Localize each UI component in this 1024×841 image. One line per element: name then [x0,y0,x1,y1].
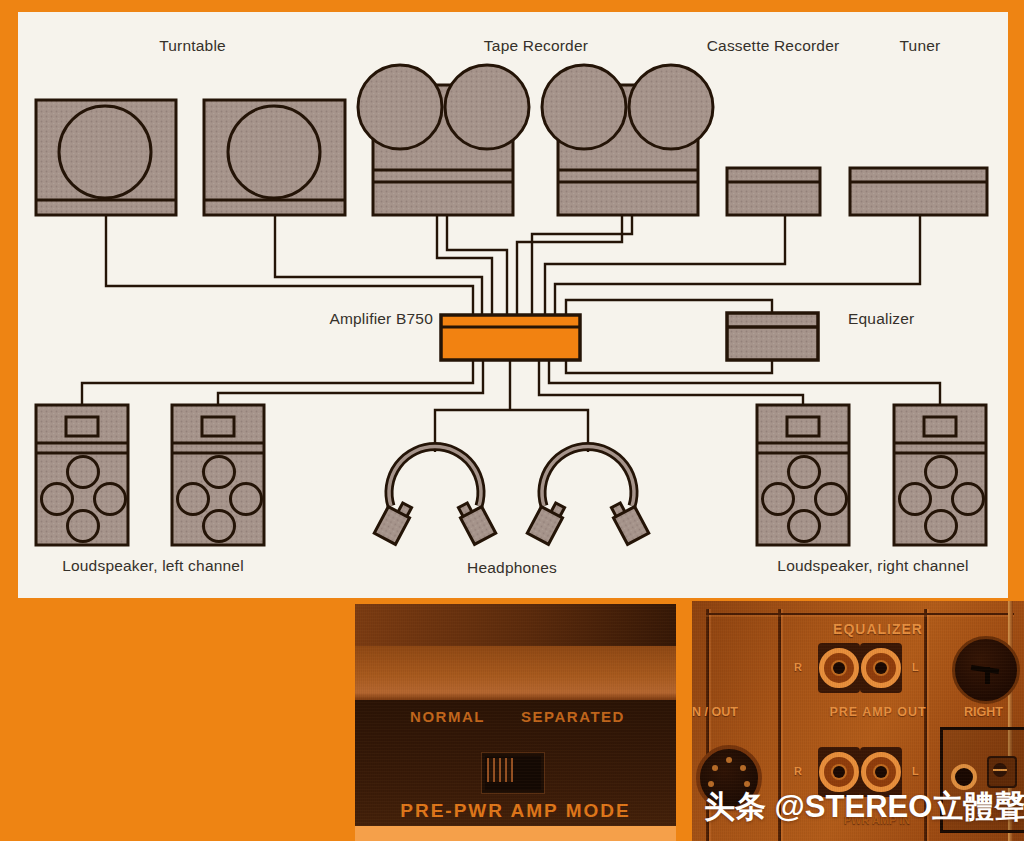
rear-label-in-out: N / OUT [692,705,738,719]
label-loudspeaker-left: Loudspeaker, left channel [53,557,253,575]
cassette-recorder-icon [727,168,820,215]
wire-turntable-2 [275,215,482,315]
switch-label-normal: NORMAL [400,708,495,725]
switch-photo: NORMAL SEPARATED PRE-PWR AMP MODE [355,604,676,826]
photo-bottom-strip [355,826,676,841]
label-turntable: Turntable [115,37,270,55]
rear-label-right: RIGHT [964,705,1003,719]
label-headphones: Headphones [412,559,612,577]
wire-turntable-1 [106,215,473,315]
label-amplifier: Amplifier B750 [280,310,433,328]
turntable-icon-2 [204,100,345,215]
tape-recorder-icon-1 [358,65,529,215]
turntable-icon-1 [36,100,176,215]
equalizer-box [727,313,818,360]
wire-headphones-split [435,410,588,452]
headphones-icon-2 [527,447,648,545]
label-cassette-recorder: Cassette Recorder [693,37,853,55]
panel-groove-top [706,613,1014,615]
switch-label-separated: SEPARATED [517,708,629,725]
label-tuner: Tuner [860,37,980,55]
jack-label-r: R [794,661,802,673]
tape-recorder-icon-2 [542,65,713,215]
loudspeaker-icon-right-1 [757,405,849,545]
watermark-text: 头条 @STEREO立體聲 [704,786,1024,828]
amplifier-box [441,315,580,360]
rear-label-pre-amp-out: PRE AMP OUT [798,705,958,719]
photo-highlight-band [355,604,676,646]
wire-speaker-right-2 [549,360,940,405]
screw-terminal [987,756,1017,788]
scanned-manual-page: Turntable Tape Recorder Cassette Recorde… [0,0,1024,841]
wire-speaker-left-1 [82,360,473,405]
rca-jack-equalizer-r [818,643,860,693]
speaker-connector [952,636,1020,704]
wire-tape-1a [437,215,492,315]
label-tape-recorder: Tape Recorder [456,37,616,55]
loudspeaker-icon-right-2 [894,405,986,545]
jack-label-r: R [794,765,802,777]
wire-tape-1b [447,215,507,315]
label-loudspeaker-right: Loudspeaker, right channel [773,557,973,575]
rear-label-equalizer: EQUALIZER [798,621,958,637]
tuner-icon [850,168,987,215]
headphones-icon-1 [374,447,495,545]
label-equalizer: Equalizer [848,310,968,328]
photo-mid-band [355,646,676,700]
loudspeaker-icon-left-2 [172,405,264,545]
slide-switch-knob [487,758,513,782]
jack-label-l: L [912,765,919,777]
rca-jack-equalizer-l [860,643,902,693]
jack-label-l: L [912,661,919,673]
loudspeaker-icon-left-1 [36,405,128,545]
switch-caption: PRE-PWR AMP MODE [355,800,676,822]
slide-switch [482,753,544,793]
